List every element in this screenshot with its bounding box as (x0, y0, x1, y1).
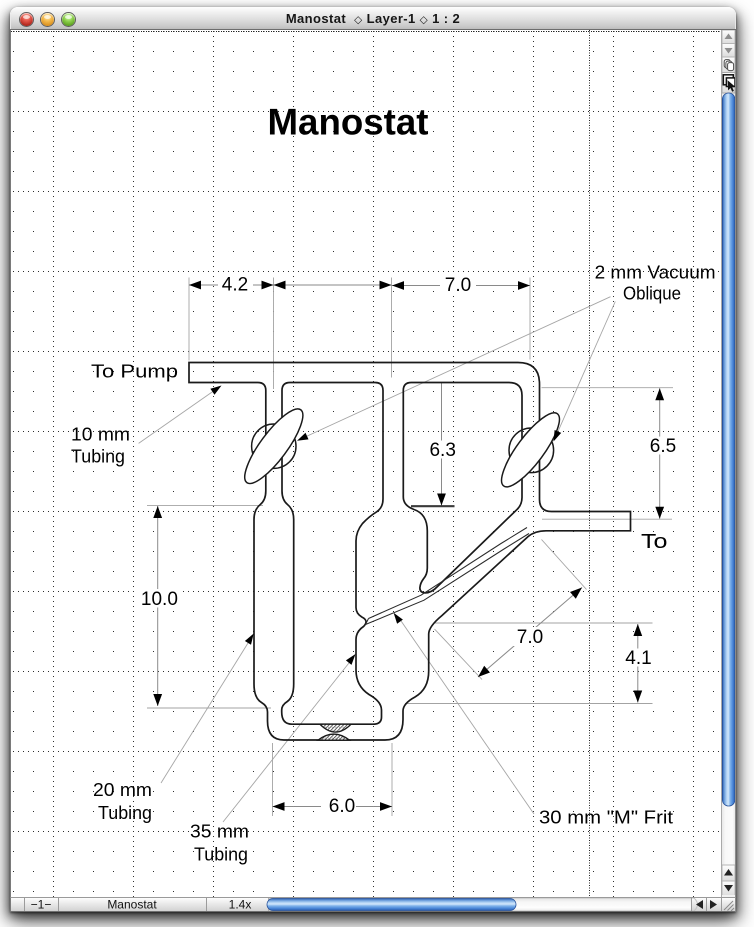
svg-text:10.0: 10.0 (141, 589, 178, 610)
svg-text:4.2: 4.2 (222, 275, 248, 296)
svg-text:Oblique: Oblique (623, 283, 681, 304)
svg-text:6.5: 6.5 (650, 436, 676, 457)
svg-text:To Pump: To Pump (91, 361, 178, 382)
svg-text:Tubing: Tubing (194, 844, 248, 865)
svg-text:6.3: 6.3 (429, 440, 455, 461)
svg-text:30 mm "M" Frit: 30 mm "M" Frit (539, 807, 673, 828)
svg-text:10 mm: 10 mm (71, 424, 130, 445)
svg-text:−1−: −1− (31, 898, 52, 911)
svg-text:To: To (641, 531, 668, 553)
svg-text:4.1: 4.1 (625, 648, 651, 669)
svg-text:35 mm: 35 mm (190, 821, 249, 842)
svg-text:7.0: 7.0 (445, 275, 471, 296)
svg-text:2 mm Vacuum: 2 mm Vacuum (595, 262, 716, 283)
svg-text:Tubing: Tubing (71, 446, 125, 467)
svg-text:Manostat: Manostat (268, 102, 429, 143)
svg-text:Tubing: Tubing (98, 802, 152, 823)
svg-text:7.0: 7.0 (517, 627, 543, 648)
svg-text:6.0: 6.0 (329, 796, 355, 817)
svg-text:Manostat: Manostat (107, 898, 157, 911)
svg-text:1.4x: 1.4x (229, 898, 252, 911)
svg-text:20 mm: 20 mm (93, 779, 152, 800)
